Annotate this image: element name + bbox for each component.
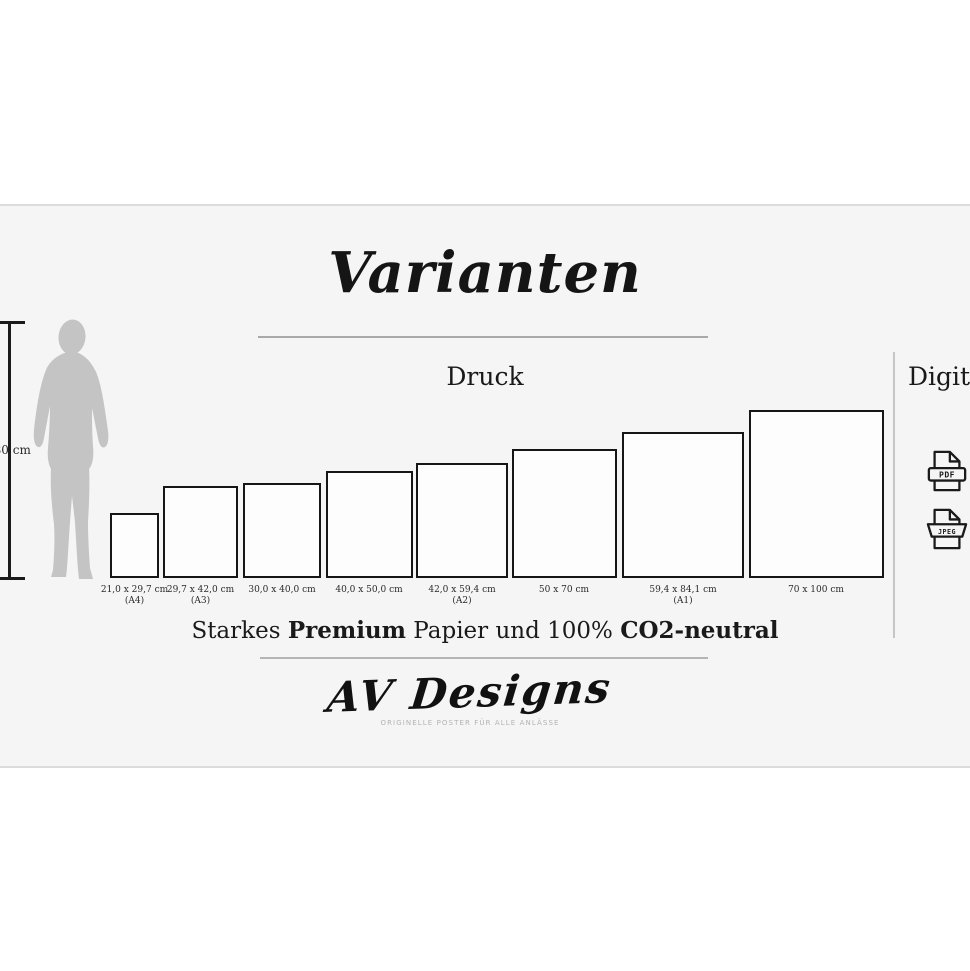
size-box-a1: [622, 432, 744, 578]
pdf-label: PDF: [939, 470, 955, 480]
size-box-30x40: [243, 483, 321, 578]
page-title: Varianten: [0, 240, 970, 306]
premium-claim: Starkes Premium Papier und 100% CO2-neut…: [0, 617, 970, 644]
size-box-a4: [110, 513, 159, 578]
print-section-label: Druck: [0, 362, 970, 391]
size-box-70x100: [749, 410, 884, 578]
size-label-a2: 42,0 x 59,4 cm(A2): [412, 585, 512, 607]
size-label-70x100: 70 x 100 cm: [766, 585, 866, 596]
size-box-50x70: [512, 449, 617, 578]
size-label-50x70: 50 x 70 cm: [514, 585, 614, 596]
size-label-40x50: 40,0 x 50,0 cm: [319, 585, 419, 596]
pdf-file-icon: PDF: [926, 449, 968, 493]
digital-section-label: Digital: [908, 362, 970, 391]
jpeg-file-icon: JPEG: [926, 507, 968, 551]
premium-divider-line: [260, 657, 708, 659]
brand-logo: AV Designs: [325, 663, 614, 722]
brand-tagline: ORIGINELLE POSTER FÜR ALLE ANLÄSSE: [0, 719, 940, 727]
jpeg-label: JPEG: [938, 528, 956, 536]
size-box-a3: [163, 486, 238, 578]
size-label-a1: 59,4 x 84,1 cm(A1): [633, 585, 733, 607]
person-silhouette-icon: [22, 318, 117, 580]
brand-block: AV Designs ORIGINELLE POSTER FÜR ALLE AN…: [0, 668, 940, 727]
size-label-30x40: 30,0 x 40,0 cm: [232, 585, 332, 596]
size-box-40x50: [326, 471, 413, 578]
size-box-a2: [416, 463, 508, 578]
digital-section-divider: [893, 352, 895, 638]
title-divider-line: [258, 336, 708, 338]
product-infographic: Varianten Druck Digital 180 cm 21,0 x 29…: [0, 0, 970, 971]
